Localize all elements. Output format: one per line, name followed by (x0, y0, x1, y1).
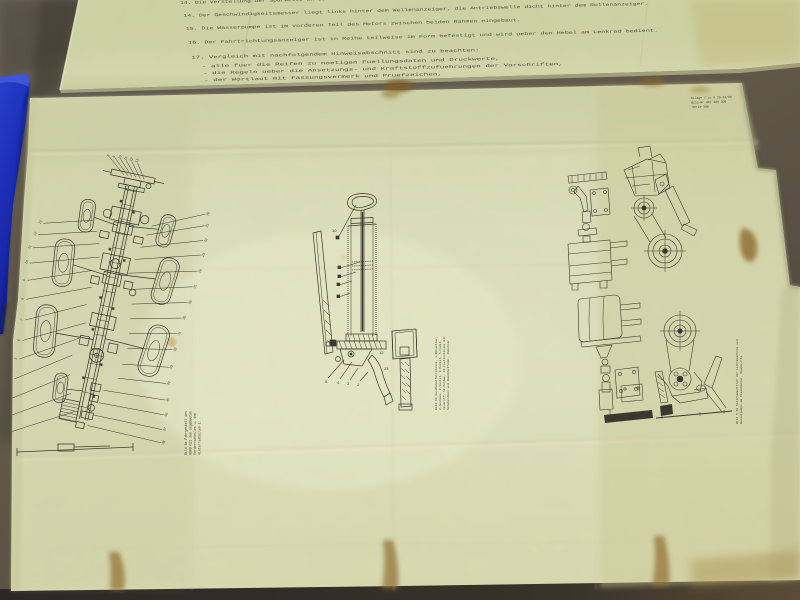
svg-text:10-Griff, 12-Kolben, 23-Fuellz: 10-Griff, 12-Kolben, 23-Fuellzylinder mi… (442, 336, 446, 410)
svg-text:23: 23 (384, 366, 389, 371)
svg-text:Schubkolben und Rueckholfeder,: Schubkolben und Rueckholfeder, Zubehoer (446, 340, 450, 410)
svg-text:Bild 6.10 Keilriementrieb der: Bild 6.10 Keilriementrieb der Lichtmasch… (735, 339, 739, 424)
svg-text:Vorderradteilen u. den: Vorderradteilen u. den (193, 413, 197, 455)
svg-text:Serie 900: Serie 900 (692, 105, 709, 109)
svg-text:Bild 6b Handhebelfettpresse, 1: Bild 6b Handhebelfettpresse, 1-Behaelter… (434, 336, 438, 410)
svg-text:Wasserpumpe am Dieselmotor, Sp: Wasserpumpe am Dieselmotor, Spannrolle (739, 355, 743, 424)
svg-text:12: 12 (379, 350, 384, 355)
svg-text:10: 10 (332, 228, 337, 233)
svg-text:Hinterradteilen 1:: Hinterradteilen 1: (198, 420, 202, 455)
svg-text:Bild 6a Fahrgestell des: Bild 6a Fahrgestell des (184, 411, 188, 455)
svg-text:RS09 mit den angebauten: RS09 mit den angebauten (189, 411, 193, 455)
svg-text:2-Auslass, 3-Ventil, 4-Deckel,: 2-Auslass, 3-Ventil, 4-Deckel, 5-Feder, (438, 340, 442, 410)
